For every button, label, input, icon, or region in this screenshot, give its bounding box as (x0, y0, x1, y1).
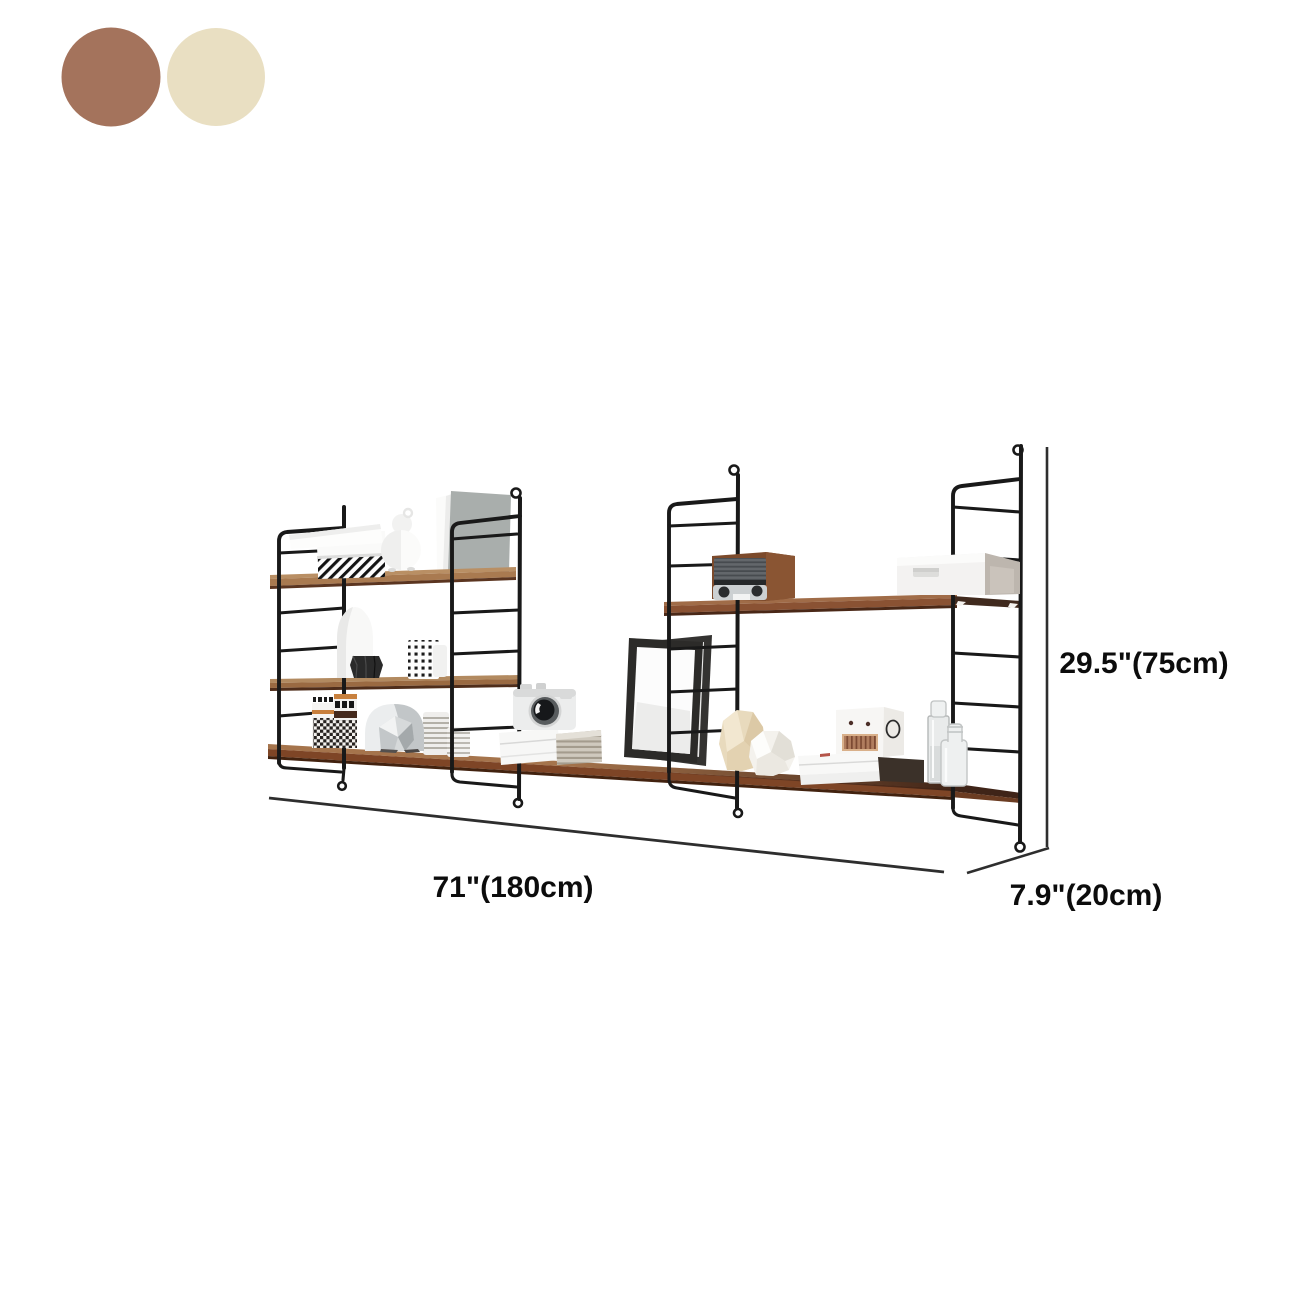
svg-text:29.5"(75cm): 29.5"(75cm) (1059, 647, 1228, 680)
svg-text:7.9"(20cm): 7.9"(20cm) (1010, 879, 1163, 912)
svg-text:71"(180cm): 71"(180cm) (433, 871, 594, 904)
